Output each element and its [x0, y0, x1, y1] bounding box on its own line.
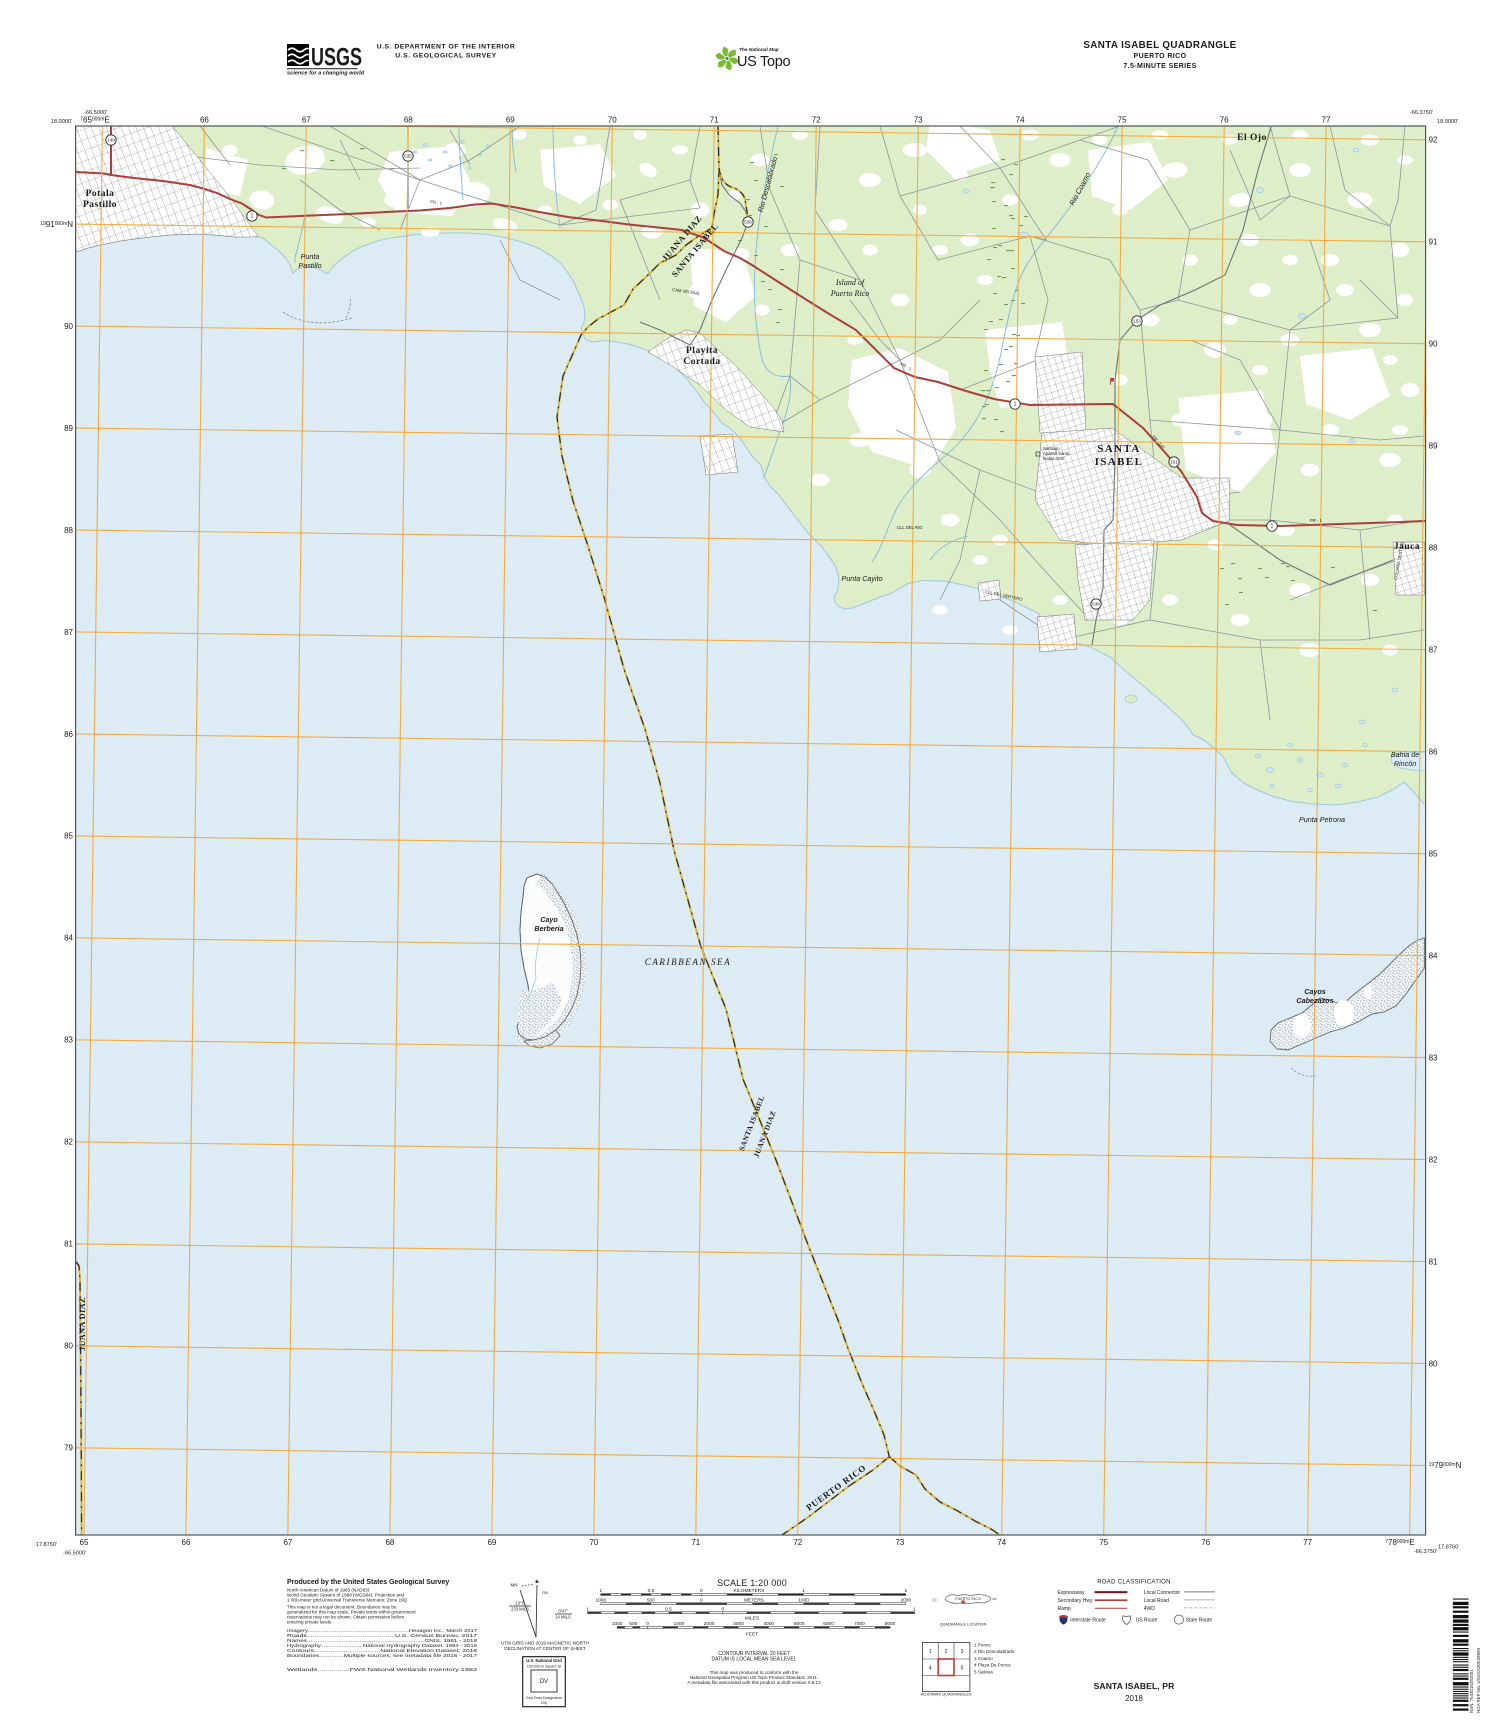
- svg-text:Puerto Rico: Puerto Rico: [830, 289, 869, 298]
- svg-text:QUADRANGLE LOCATION: QUADRANGLE LOCATION: [940, 1623, 987, 1627]
- svg-text:Boundaries..............Multip: Boundaries..............Multiple sources…: [287, 1653, 478, 1658]
- svg-text:72: 72: [793, 1538, 802, 1547]
- svg-text:MILES: MILES: [745, 1616, 759, 1622]
- svg-text:-66.5000′: -66.5000′: [84, 110, 107, 116]
- svg-text:DATUM IS LOCAL MEAN SEA LEVEL: DATUM IS LOCAL MEAN SEA LEVEL: [711, 1657, 796, 1663]
- svg-text:★: ★: [534, 1579, 539, 1586]
- svg-text:538: 538: [1092, 602, 1100, 607]
- svg-text:Pastillo: Pastillo: [298, 261, 321, 270]
- svg-text:SANTA: SANTA: [1097, 443, 1140, 455]
- svg-text:2: 2: [904, 1588, 907, 1594]
- svg-text:Playita: Playita: [686, 346, 718, 356]
- svg-text:4: 4: [929, 1666, 932, 1672]
- svg-text:Punta Petrona: Punta Petrona: [1299, 815, 1345, 824]
- svg-text:Produced by the United States: Produced by the United States Geological…: [287, 1579, 449, 1586]
- svg-text:70: 70: [589, 1538, 598, 1547]
- svg-text:Punta Cayito: Punta Cayito: [841, 574, 882, 583]
- svg-text:CARIBBEAN SEA: CARIBBEAN SEA: [645, 957, 732, 967]
- svg-text:83: 83: [1429, 1053, 1438, 1062]
- svg-text:86: 86: [64, 730, 73, 739]
- svg-text:100,000-m Square ID: 100,000-m Square ID: [527, 1665, 562, 1669]
- svg-text:FEET: FEET: [746, 1632, 758, 1638]
- svg-text:entering private lands.: entering private lands.: [287, 1620, 332, 1625]
- svg-text:73: 73: [914, 116, 923, 125]
- svg-text:-66.5000′: -66.5000′: [63, 1551, 86, 1557]
- svg-text:Berberia: Berberia: [534, 924, 563, 933]
- svg-text:70: 70: [608, 116, 617, 125]
- svg-text:ROAD CLASSIFICATION: ROAD CLASSIFICATION: [1097, 1580, 1171, 1586]
- svg-text:88: 88: [64, 526, 73, 535]
- svg-text:18.0000′: 18.0000′: [1437, 119, 1458, 125]
- svg-text:13°5′: 13°5′: [515, 1601, 525, 1606]
- svg-text:87: 87: [64, 628, 73, 637]
- svg-text:KILOMETERS: KILOMETERS: [734, 1588, 765, 1594]
- svg-text:Secondary Hwy: Secondary Hwy: [1058, 1598, 1094, 1604]
- svg-text:DECLINATION AT CENTER OF SHEET: DECLINATION AT CENTER OF SHEET: [504, 1646, 586, 1651]
- svg-text:U.S. GEOLOGICAL SURVEY: U.S. GEOLOGICAL SURVEY: [395, 53, 496, 60]
- svg-text:87: 87: [1429, 646, 1438, 655]
- svg-text:85: 85: [64, 832, 73, 841]
- svg-text:Punta: Punta: [301, 252, 320, 261]
- svg-text:0: 0: [700, 1588, 703, 1594]
- svg-text:GN: GN: [542, 1590, 548, 1595]
- svg-text:SANTA ISABEL, PR: SANTA ISABEL, PR: [1094, 1681, 1176, 1691]
- svg-text:MN: MN: [511, 1583, 518, 1588]
- svg-text:U.S. DEPARTMENT OF THE INTERIO: U.S. DEPARTMENT OF THE INTERIOR: [377, 44, 515, 51]
- svg-text:1: 1: [929, 1649, 932, 1655]
- svg-text:Expressway: Expressway: [1058, 1590, 1085, 1596]
- svg-text:69: 69: [487, 1538, 496, 1547]
- svg-text:76: 76: [1220, 116, 1229, 125]
- svg-text:Isabel Cem: Isabel Cem: [1043, 456, 1065, 461]
- svg-text:73: 73: [895, 1538, 904, 1547]
- svg-text:Grid Zone Designation: Grid Zone Designation: [526, 1696, 562, 1700]
- svg-text:90: 90: [64, 322, 73, 331]
- svg-text:82: 82: [1429, 1155, 1438, 1164]
- svg-text:Cayo: Cayo: [540, 915, 558, 924]
- svg-text:17.8750′: 17.8750′: [1438, 1545, 1459, 1551]
- svg-text:Ramp: Ramp: [1058, 1606, 1072, 1612]
- svg-text:science for a changing world: science for a changing world: [287, 71, 365, 77]
- svg-text:75: 75: [1118, 116, 1127, 125]
- svg-text:3 Coamo: 3 Coamo: [974, 1656, 993, 1661]
- svg-text:19Q: 19Q: [541, 1701, 548, 1705]
- svg-text:5 Salinas: 5 Salinas: [974, 1669, 994, 1674]
- svg-text:1: 1: [251, 214, 254, 220]
- svg-text:PR - 1: PR - 1: [1310, 518, 1323, 523]
- svg-text:67: 67: [302, 116, 311, 125]
- svg-text:80: 80: [1429, 1359, 1438, 1368]
- svg-text:The National Map: The National Map: [739, 47, 779, 53]
- svg-text:1 Ponce: 1 Ponce: [974, 1643, 991, 1648]
- svg-text:77: 77: [1322, 116, 1331, 125]
- svg-text:1: 1: [1271, 524, 1274, 530]
- svg-text:Local Connector: Local Connector: [1144, 1590, 1181, 1596]
- svg-text:5: 5: [961, 1666, 964, 1672]
- svg-text:65: 65: [80, 1538, 89, 1547]
- svg-text:17.8750′: 17.8750′: [36, 1542, 57, 1548]
- svg-text:92: 92: [1429, 136, 1438, 145]
- svg-text:81: 81: [1429, 1257, 1438, 1266]
- svg-text:1 000-meter grid:Universal Tra: 1 000-meter grid:Universal Transverse Me…: [287, 1598, 408, 1603]
- svg-text:71: 71: [691, 1538, 700, 1547]
- svg-text:67: 67: [283, 1538, 292, 1547]
- svg-text:90: 90: [1429, 340, 1438, 349]
- svg-text:161: 161: [1170, 460, 1178, 465]
- svg-text:89: 89: [64, 424, 73, 433]
- svg-text:Interstate Route: Interstate Route: [1070, 1617, 1106, 1623]
- svg-text:CLL DEL RIO: CLL DEL RIO: [897, 525, 923, 530]
- svg-text:Local Road: Local Road: [1144, 1598, 1170, 1604]
- svg-text:Bahia de: Bahia de: [1391, 750, 1419, 759]
- svg-text:91: 91: [1429, 238, 1438, 247]
- svg-text:1: 1: [1014, 402, 1017, 408]
- svg-text:PUERTO RICO: PUERTO RICO: [955, 1597, 981, 1601]
- svg-text:536: 536: [744, 220, 752, 225]
- svg-text:State Route: State Route: [1186, 1617, 1213, 1623]
- svg-text:SANTA ISABEL QUADRANGLE: SANTA ISABEL QUADRANGLE: [1083, 40, 1236, 51]
- svg-text:80: 80: [64, 1342, 73, 1351]
- svg-text:85: 85: [1429, 849, 1438, 858]
- svg-text:PUERTO RICO: PUERTO RICO: [1134, 53, 1187, 60]
- svg-text:153: 153: [1133, 319, 1141, 324]
- svg-text:Rincón: Rincón: [1394, 759, 1416, 768]
- svg-text:14 MILS: 14 MILS: [555, 1615, 571, 1620]
- svg-text:U.S. National Grid: U.S. National Grid: [526, 1658, 562, 1663]
- svg-text:76: 76: [1201, 1538, 1210, 1547]
- svg-text:66: 66: [200, 116, 209, 125]
- svg-text:Pastillo: Pastillo: [83, 200, 117, 210]
- svg-text:Cortada: Cortada: [683, 357, 720, 367]
- svg-text:7.5-MINUTE SERIES: 7.5-MINUTE SERIES: [1123, 63, 1196, 70]
- svg-text:A metadata file associated wit: A metadata file associated with this pro…: [687, 1680, 821, 1685]
- svg-text:NGA REF NO. USGSX20K39899: NGA REF NO. USGSX20K39899: [1476, 1648, 1481, 1713]
- svg-text:74: 74: [1016, 116, 1025, 125]
- svg-text:86: 86: [1429, 747, 1438, 756]
- svg-text:SCALE 1:20 000: SCALE 1:20 000: [717, 1578, 787, 1588]
- svg-text:79: 79: [64, 1444, 73, 1453]
- svg-text:71: 71: [710, 116, 719, 125]
- svg-text:1991000mN: 1991000mN: [40, 220, 73, 229]
- svg-text:USGS: USGS: [311, 43, 362, 72]
- svg-text:68: 68: [404, 116, 413, 125]
- svg-text:JUANA DIAZ: JUANA DIAZ: [78, 1297, 87, 1351]
- svg-text:-66.3750′: -66.3750′: [1414, 1549, 1437, 1555]
- svg-text:82: 82: [64, 1138, 73, 1147]
- svg-text:84: 84: [1429, 951, 1438, 960]
- svg-text:69: 69: [506, 116, 515, 125]
- svg-text:81: 81: [64, 1240, 73, 1249]
- svg-text:Potala: Potala: [86, 189, 115, 199]
- svg-text:77: 77: [1303, 1538, 1312, 1547]
- svg-text:ADJOINING QUADRANGLES: ADJOINING QUADRANGLES: [921, 1693, 972, 1697]
- svg-text:72: 72: [812, 116, 821, 125]
- svg-text:DV: DV: [540, 1679, 548, 1685]
- svg-text:US Topo: US Topo: [737, 54, 790, 70]
- svg-text:4WD: 4WD: [1144, 1606, 1156, 1612]
- svg-text:88: 88: [1429, 544, 1438, 553]
- svg-text:535: 535: [404, 154, 412, 159]
- svg-text:ISABEL: ISABEL: [1095, 456, 1144, 468]
- svg-text:Wetlands................FWS: Wetlands................FWS National Wet…: [287, 1667, 478, 1672]
- svg-text:1: 1: [599, 1588, 602, 1594]
- svg-text:3: 3: [961, 1649, 964, 1655]
- svg-text:El Ojo: El Ojo: [1237, 133, 1267, 143]
- svg-text:0°47′: 0°47′: [558, 1609, 568, 1614]
- svg-text:0.5: 0.5: [648, 1588, 655, 1594]
- svg-text:149: 149: [107, 138, 115, 143]
- svg-text:4 Playa De Ponce: 4 Playa De Ponce: [974, 1663, 1011, 1668]
- svg-text:89: 89: [1429, 442, 1438, 451]
- svg-text:66: 66: [182, 1538, 191, 1547]
- svg-text:233 MILS: 233 MILS: [511, 1607, 529, 1612]
- svg-text:Cabezazos: Cabezazos: [1296, 996, 1333, 1005]
- svg-text:18.0000′: 18.0000′: [51, 119, 72, 125]
- svg-text:-66.3750′: -66.3750′: [1410, 110, 1433, 116]
- svg-text:83: 83: [64, 1036, 73, 1045]
- svg-text:68: 68: [385, 1538, 394, 1547]
- svg-text:UTM GRID AND 2019 MAGNETIC NOR: UTM GRID AND 2019 MAGNETIC NORTH: [501, 1641, 589, 1646]
- svg-text:84: 84: [64, 934, 73, 943]
- svg-text:778000mE: 778000mE: [1385, 1538, 1415, 1547]
- svg-text:1979000mN: 1979000mN: [1429, 1461, 1462, 1470]
- svg-text:1: 1: [802, 1588, 805, 1594]
- svg-text:2 Rio Descalabrado: 2 Rio Descalabrado: [974, 1649, 1015, 1654]
- svg-text:765000mE: 765000mE: [80, 116, 110, 125]
- svg-text:NSN. 7643016392051: NSN. 7643016392051: [1469, 1669, 1474, 1713]
- svg-text:US Route: US Route: [1136, 1617, 1158, 1623]
- svg-text:2018: 2018: [1125, 1694, 1143, 1703]
- svg-text:Island of: Island of: [835, 278, 866, 287]
- svg-text:75: 75: [1099, 1538, 1108, 1547]
- svg-text:Cayos: Cayos: [1304, 987, 1326, 996]
- svg-text:2: 2: [945, 1649, 948, 1655]
- svg-text:74: 74: [997, 1538, 1006, 1547]
